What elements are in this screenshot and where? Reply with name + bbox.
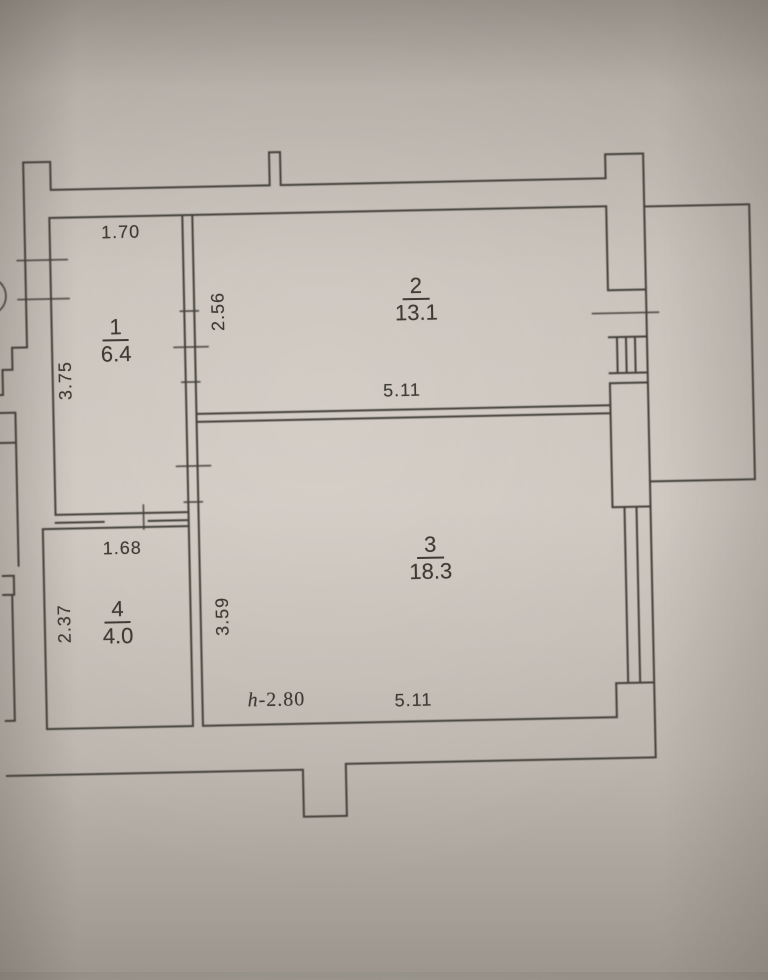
right-wall-inner [606,206,617,717]
room2-depth-dim: 2.56 [207,292,229,331]
room3-label: 3 18.3 [409,533,453,585]
height-symbol: h [247,689,258,711]
room2-width-dim: 5.11 [383,380,421,402]
room3-depth-dim: 3.59 [212,597,234,636]
room3-area: 18.3 [409,560,452,585]
central-wall [182,215,203,726]
room2-area: 13.1 [395,301,438,326]
outer-wall [0,145,657,823]
hall-door-tick [143,505,144,529]
room1-label: 1 6.4 [100,316,132,367]
room2-number: 2 [402,275,429,301]
hall-bottom-wall [56,512,189,523]
room2-room3-partition [196,405,610,422]
floor-plan: 1.70 3.75 2.56 5.11 3.59 5.11 1.68 2.37 … [0,0,768,980]
room1-width-dim: 1.70 [101,222,140,244]
floor-plan-drawing [0,0,768,980]
room1-number: 1 [102,316,129,342]
room3-bottom-wall [203,717,617,726]
room1-depth-dim: 3.75 [55,361,77,400]
room1-area: 6.4 [101,342,132,367]
height-value: -2.80 [258,688,305,711]
entrance-door-arc [0,280,6,312]
balcony-door-tick [592,312,658,313]
top-wall-inner [49,206,606,218]
left-edge-fragments [0,413,22,721]
ceiling-height-note: h-2.80 [247,688,305,712]
room4-depth-dim: 2.37 [54,604,76,643]
room4-label: 4 4.0 [102,598,134,649]
room3-width-dim: 5.11 [394,690,432,712]
central-wall-ticks [173,311,211,503]
room4-area: 4.0 [103,624,134,649]
room2-window [617,337,636,373]
room2-label: 2 13.1 [394,275,438,327]
room4-width-dim: 1.68 [103,538,142,560]
room3-number: 3 [417,533,444,559]
room4-number: 4 [104,598,131,624]
room3-window [624,507,640,683]
balcony-outline [644,204,755,481]
